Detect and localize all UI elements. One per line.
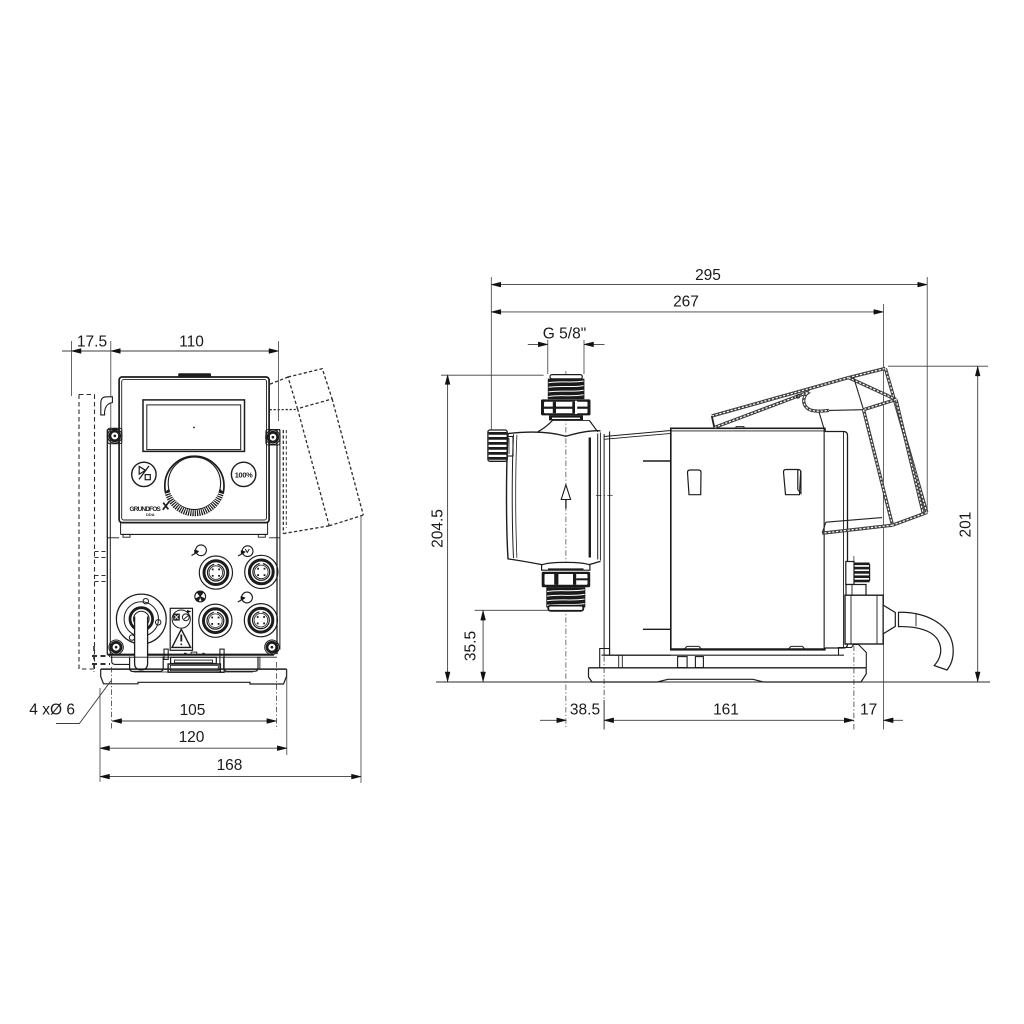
svg-text:35.5: 35.5 — [463, 631, 480, 661]
svg-text:17.5: 17.5 — [77, 334, 107, 351]
svg-text:DDA: DDA — [146, 512, 155, 517]
svg-text:4 xØ 6: 4 xØ 6 — [29, 702, 75, 719]
svg-text:105: 105 — [180, 702, 206, 719]
svg-text:201: 201 — [957, 512, 974, 538]
svg-text:295: 295 — [695, 267, 721, 284]
svg-text:168: 168 — [217, 757, 243, 774]
svg-text:161: 161 — [713, 702, 739, 719]
svg-text:17: 17 — [860, 702, 877, 719]
svg-text:120: 120 — [179, 729, 205, 746]
svg-text:G 5/8": G 5/8" — [543, 326, 586, 343]
svg-text:110: 110 — [179, 334, 204, 351]
svg-text:204.5: 204.5 — [430, 509, 447, 548]
svg-text:100%: 100% — [235, 470, 253, 479]
svg-text:267: 267 — [673, 293, 699, 310]
svg-text:38.5: 38.5 — [570, 702, 600, 719]
